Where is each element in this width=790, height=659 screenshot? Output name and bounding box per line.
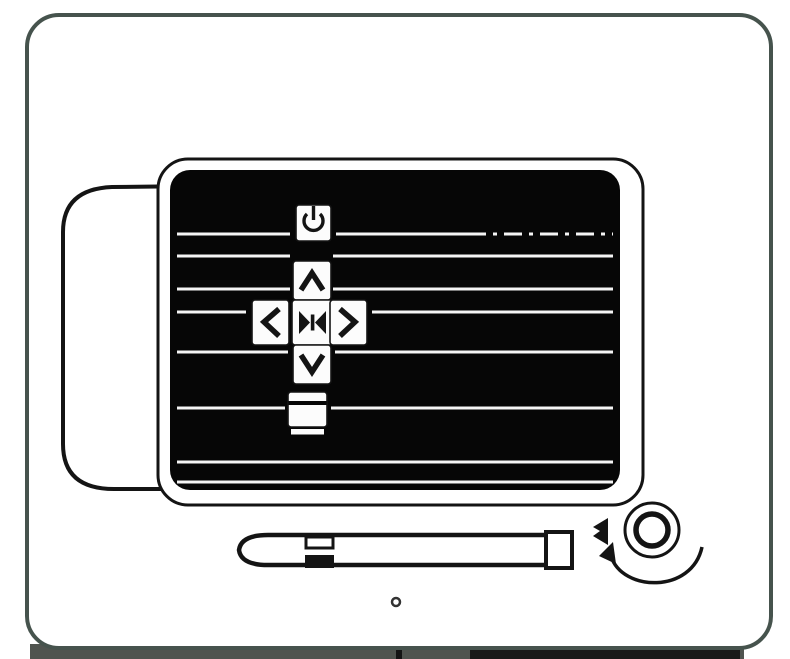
left-button[interactable] bbox=[252, 300, 289, 345]
menu-underline bbox=[291, 429, 324, 435]
stylus-body bbox=[239, 535, 547, 565]
stylus-end-cap bbox=[546, 532, 572, 568]
control-panel bbox=[170, 170, 620, 490]
right-button[interactable] bbox=[330, 300, 367, 345]
enter-button[interactable] bbox=[292, 300, 333, 345]
knob-outer-ring bbox=[625, 503, 679, 557]
up-button[interactable] bbox=[293, 261, 331, 300]
stylus-clip-top bbox=[306, 537, 333, 548]
pinhole bbox=[392, 598, 400, 606]
stylus-clip-bottom bbox=[305, 555, 334, 568]
power-button[interactable] bbox=[296, 205, 331, 241]
device-top-view-diagram bbox=[0, 0, 790, 659]
stylus-pen[interactable] bbox=[239, 532, 572, 568]
down-button[interactable] bbox=[293, 345, 331, 384]
